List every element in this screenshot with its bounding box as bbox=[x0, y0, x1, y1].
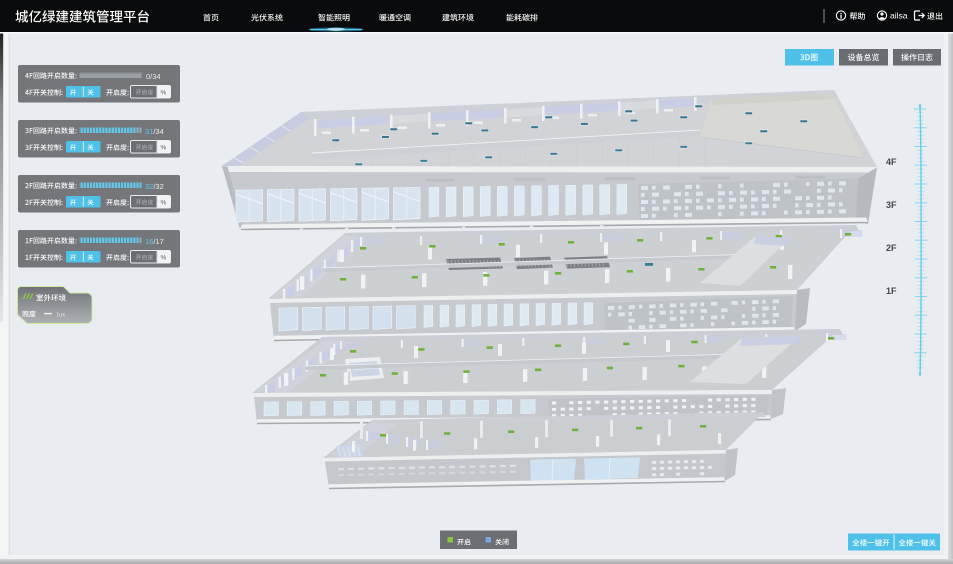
svg-text:32/32: 32/32 bbox=[145, 182, 164, 191]
svg-text:1F: 1F bbox=[886, 286, 897, 296]
svg-text:31/34: 31/34 bbox=[145, 127, 164, 136]
svg-text:0/34: 0/34 bbox=[146, 72, 161, 81]
svg-text:%: % bbox=[161, 145, 167, 152]
svg-text:3F: 3F bbox=[886, 200, 897, 210]
svg-text:2F: 2F bbox=[886, 243, 897, 253]
svg-text:ailsa: ailsa bbox=[890, 11, 908, 21]
svg-text:lux: lux bbox=[57, 312, 66, 319]
svg-text:%: % bbox=[161, 255, 167, 262]
svg-text:%: % bbox=[161, 200, 167, 207]
svg-text:%: % bbox=[161, 90, 167, 97]
svg-text:4F: 4F bbox=[886, 157, 897, 167]
svg-text:16/17: 16/17 bbox=[145, 237, 164, 246]
